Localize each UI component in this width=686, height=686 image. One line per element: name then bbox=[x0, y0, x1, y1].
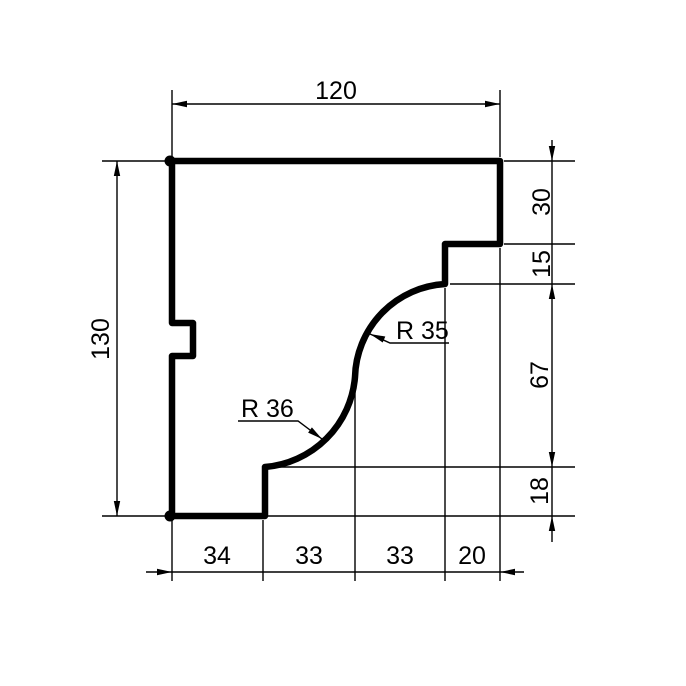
arrowhead-up-at-bottom-edge bbox=[549, 516, 555, 531]
arrowhead-up-at-curve-top bbox=[549, 284, 555, 299]
profile-outline bbox=[172, 161, 500, 516]
dim-label-right-18: 18 bbox=[526, 477, 554, 505]
leader-radius-upper: R 35 bbox=[370, 317, 449, 345]
arrowhead-r35 bbox=[370, 334, 385, 343]
arrowhead-right-at-left-end bbox=[157, 569, 172, 575]
arrowhead-down-at-top-edge bbox=[549, 146, 555, 161]
radius-label-r36: R 36 bbox=[241, 395, 294, 423]
dim-label-right-30: 30 bbox=[528, 188, 556, 216]
arrowhead-up bbox=[114, 161, 120, 176]
drawing-canvas: 120 130 30 15 67 18 34 33 33 bbox=[0, 0, 686, 686]
cornice-profile-drawing: 120 130 30 15 67 18 34 33 33 bbox=[0, 0, 686, 686]
dim-label-left-height: 130 bbox=[87, 318, 115, 360]
dim-label-bottom-33a: 33 bbox=[295, 542, 323, 570]
dim-label-bottom-33b: 33 bbox=[386, 542, 414, 570]
arrowhead-left bbox=[172, 101, 187, 107]
dim-top-width: 120 bbox=[172, 77, 500, 157]
dim-label-top-width: 120 bbox=[315, 77, 357, 105]
arrowhead-down bbox=[114, 501, 120, 516]
dim-label-right-67: 67 bbox=[526, 361, 554, 389]
dim-label-right-15: 15 bbox=[528, 250, 556, 278]
dim-bottom-chain: 34 33 33 20 bbox=[146, 248, 524, 581]
radius-label-r35: R 35 bbox=[396, 317, 449, 345]
leader-radius-lower: R 36 bbox=[238, 395, 322, 439]
arrowhead-left-at-right-end bbox=[500, 569, 515, 575]
corner-dot-top-left bbox=[165, 156, 176, 167]
dim-label-bottom-34: 34 bbox=[203, 542, 231, 570]
leader-line-r36 bbox=[238, 421, 322, 439]
arrowhead-r36 bbox=[308, 427, 322, 439]
arrowhead-down-at-curve-bottom bbox=[549, 452, 555, 467]
dim-label-bottom-20: 20 bbox=[458, 542, 486, 570]
arrowhead-right bbox=[485, 101, 500, 107]
dim-left-height: 130 bbox=[87, 161, 166, 516]
